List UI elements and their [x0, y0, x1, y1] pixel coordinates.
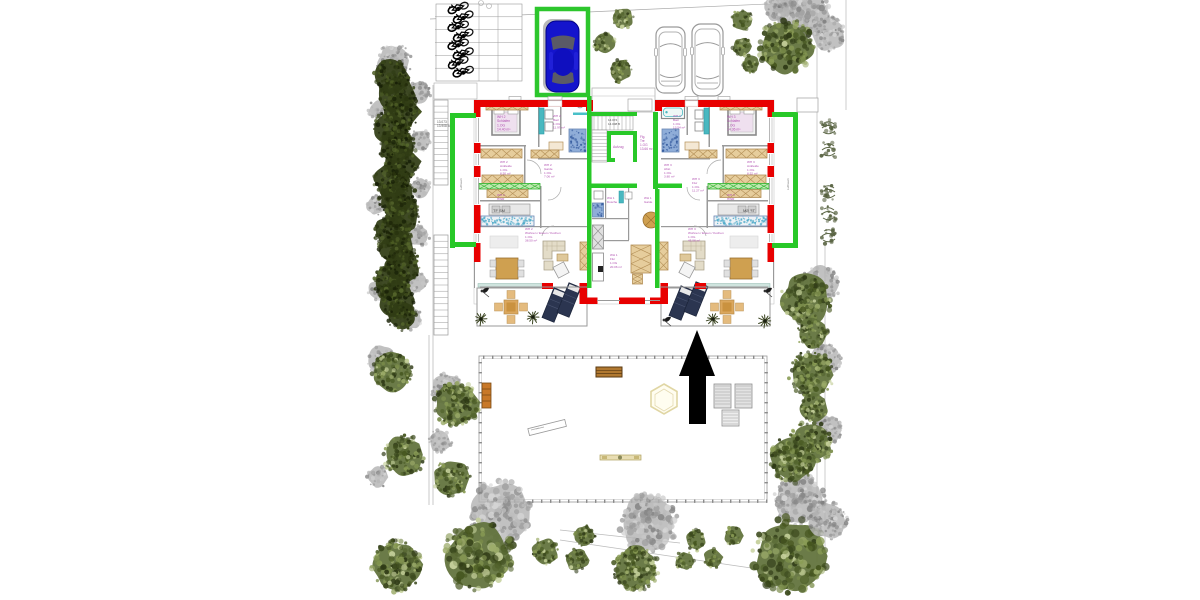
svg-text:13.54 m²: 13.54 m² [673, 126, 685, 130]
svg-text:Dusche: Dusche [607, 200, 618, 204]
svg-text:13.908 B: 13.908 B [437, 124, 450, 128]
svg-text:HWR: HWR [497, 197, 505, 201]
svg-text:11.97 m²: 11.97 m² [553, 126, 565, 130]
svg-text:14.40 m²: 14.40 m² [497, 128, 511, 132]
svg-text:TF SM: TF SM [493, 208, 505, 213]
svg-text:HWR: HWR [727, 197, 735, 201]
svg-text:Luftraum: Luftraum [459, 178, 463, 190]
svg-text:TF SM: TF SM [743, 208, 755, 213]
svg-text:13.66 m²: 13.66 m² [640, 147, 653, 151]
svg-text:Aufzug: Aufzug [613, 145, 624, 149]
svg-text:3.80 m²: 3.80 m² [664, 175, 675, 179]
svg-text:8.52 m²: 8.52 m² [747, 172, 758, 176]
svg-text:14.36 m²: 14.36 m² [727, 128, 741, 132]
svg-text:20.06 m²: 20.06 m² [610, 265, 622, 269]
svg-text:8.50 m²: 8.50 m² [500, 172, 511, 176]
svg-text:45.98 m²: 45.98 m² [688, 239, 700, 243]
svg-text:7.06 m²: 7.06 m² [544, 175, 555, 179]
svg-text:11.27 m²: 11.27 m² [692, 189, 704, 193]
svg-text:Garde: Garde [644, 200, 653, 204]
svg-text:14.008 B: 14.008 B [608, 122, 620, 126]
svg-text:Luftraum: Luftraum [786, 178, 790, 190]
svg-text:38.50 m²: 38.50 m² [525, 239, 537, 243]
